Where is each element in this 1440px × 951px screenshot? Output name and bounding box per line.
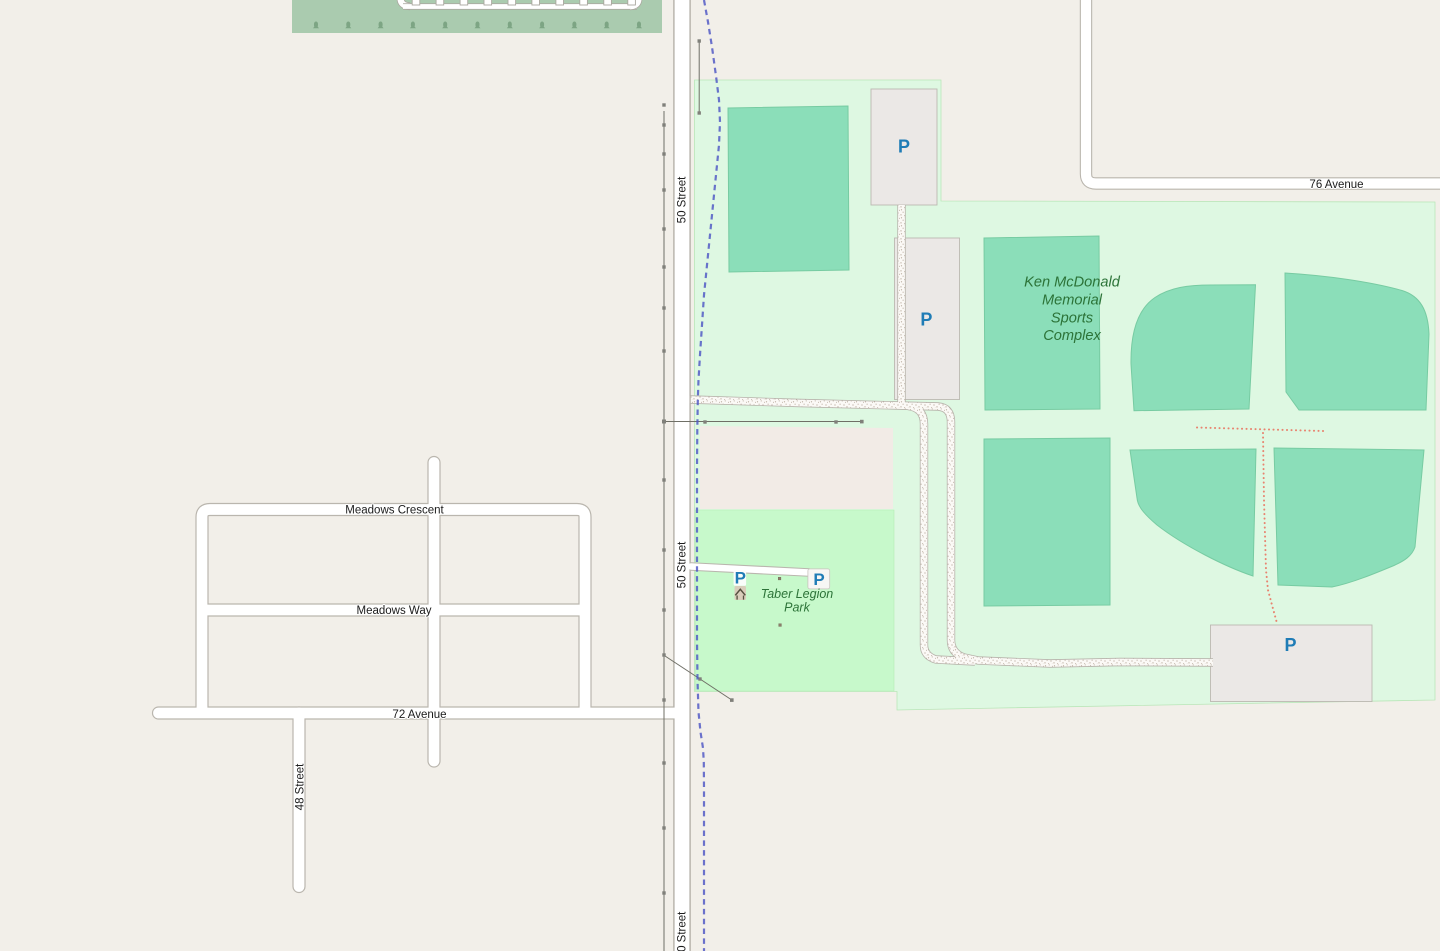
- svg-text:Taber Legion: Taber Legion: [761, 587, 834, 601]
- svg-text:Park: Park: [784, 601, 810, 615]
- svg-text:48 Street: 48 Street: [295, 763, 307, 810]
- svg-text:Complex: Complex: [1043, 328, 1101, 344]
- svg-text:P: P: [1284, 635, 1296, 655]
- svg-text:P: P: [735, 568, 746, 587]
- svg-text:P: P: [920, 310, 932, 330]
- svg-text:Ken McDonald: Ken McDonald: [1024, 275, 1121, 291]
- svg-text:50 Street: 50 Street: [677, 911, 689, 951]
- svg-text:P: P: [898, 137, 910, 157]
- svg-text:Meadows Crescent: Meadows Crescent: [345, 505, 444, 517]
- svg-text:76 Avenue: 76 Avenue: [1309, 179, 1363, 191]
- svg-text:50 Street: 50 Street: [677, 176, 689, 223]
- svg-text:Memorial: Memorial: [1042, 293, 1103, 309]
- svg-text:50 Street: 50 Street: [677, 541, 689, 588]
- svg-text:Sports: Sports: [1051, 311, 1093, 327]
- svg-text:72 Avenue: 72 Avenue: [392, 709, 446, 721]
- svg-text:Meadows Way: Meadows Way: [357, 605, 432, 617]
